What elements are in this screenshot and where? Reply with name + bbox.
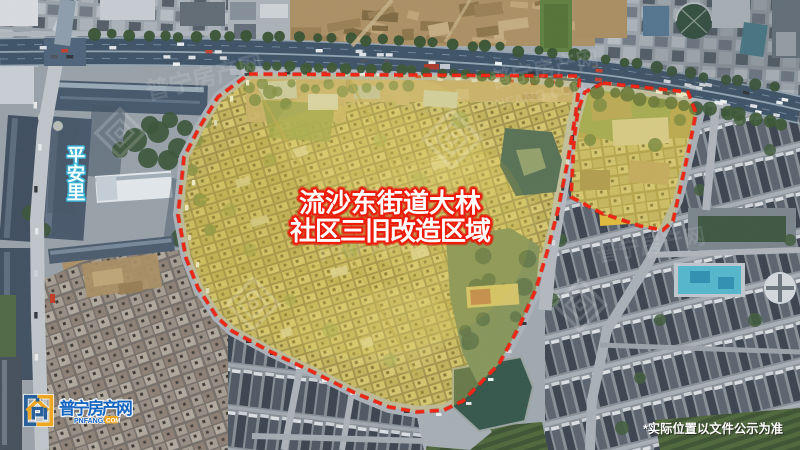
svg-text:社区三旧改造区域: 社区三旧改造区域 [290, 216, 491, 246]
svg-text:里: 里 [67, 182, 86, 203]
svg-text:PNFANG.: PNFANG. [74, 418, 105, 425]
svg-text:普宁房产网: 普宁房产网 [59, 398, 132, 418]
svg-text:*实际位置以文件公示为准: *实际位置以文件公示为准 [643, 421, 783, 436]
svg-text:COM: COM [106, 417, 120, 424]
svg-text:流沙东街道大林: 流沙东街道大林 [299, 188, 481, 218]
